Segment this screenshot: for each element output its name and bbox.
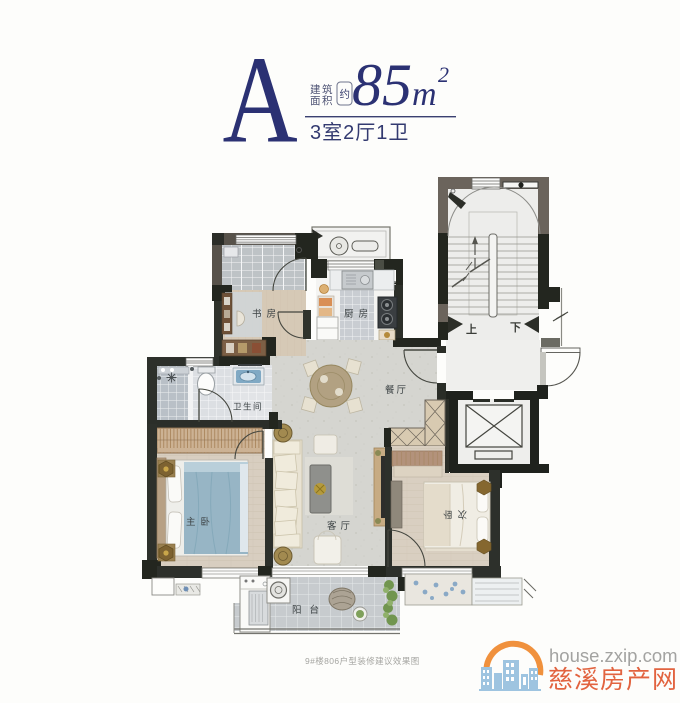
svg-text:厨房: 厨房 [344, 308, 373, 320]
svg-text:阳台: 阳台 [292, 604, 327, 616]
svg-text:85: 85 [352, 52, 412, 118]
svg-text:约: 约 [340, 88, 351, 101]
svg-text:卫生间: 卫生间 [233, 402, 263, 412]
svg-text:house.zxip.com: house.zxip.com [549, 645, 678, 666]
svg-text:A: A [223, 31, 298, 169]
svg-text:面积: 面积 [310, 95, 334, 107]
svg-text:上: 上 [466, 322, 477, 336]
svg-text:下: 下 [510, 321, 521, 334]
svg-text:餐厅: 餐厅 [385, 384, 408, 396]
svg-text:主卧: 主卧 [186, 516, 215, 528]
svg-text:9#楼806户型装修建议效果图: 9#楼806户型装修建议效果图 [305, 656, 420, 666]
svg-text:2: 2 [438, 62, 449, 87]
svg-text:m: m [412, 76, 437, 113]
svg-text:3室2厅1卫: 3室2厅1卫 [310, 121, 409, 144]
svg-text:慈溪房产网: 慈溪房产网 [548, 666, 678, 694]
svg-text:客厅: 客厅 [327, 520, 354, 532]
svg-text:次卧: 次卧 [438, 508, 467, 520]
svg-text:书房: 书房 [252, 308, 281, 320]
